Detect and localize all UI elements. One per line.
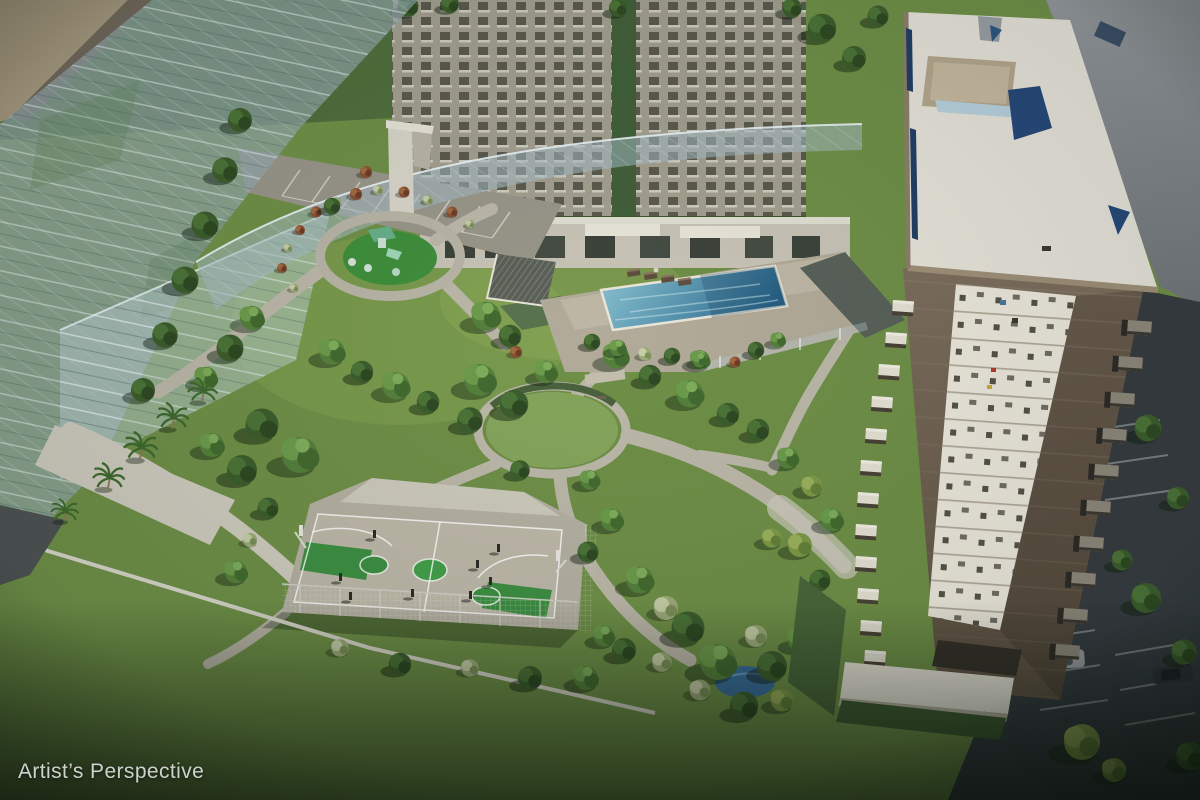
rendering-canvas: Artist’s Perspective (0, 0, 1200, 800)
aerial-rendering (0, 0, 1200, 800)
caption-artists-perspective: Artist’s Perspective (18, 760, 204, 784)
vignette (0, 0, 1200, 800)
